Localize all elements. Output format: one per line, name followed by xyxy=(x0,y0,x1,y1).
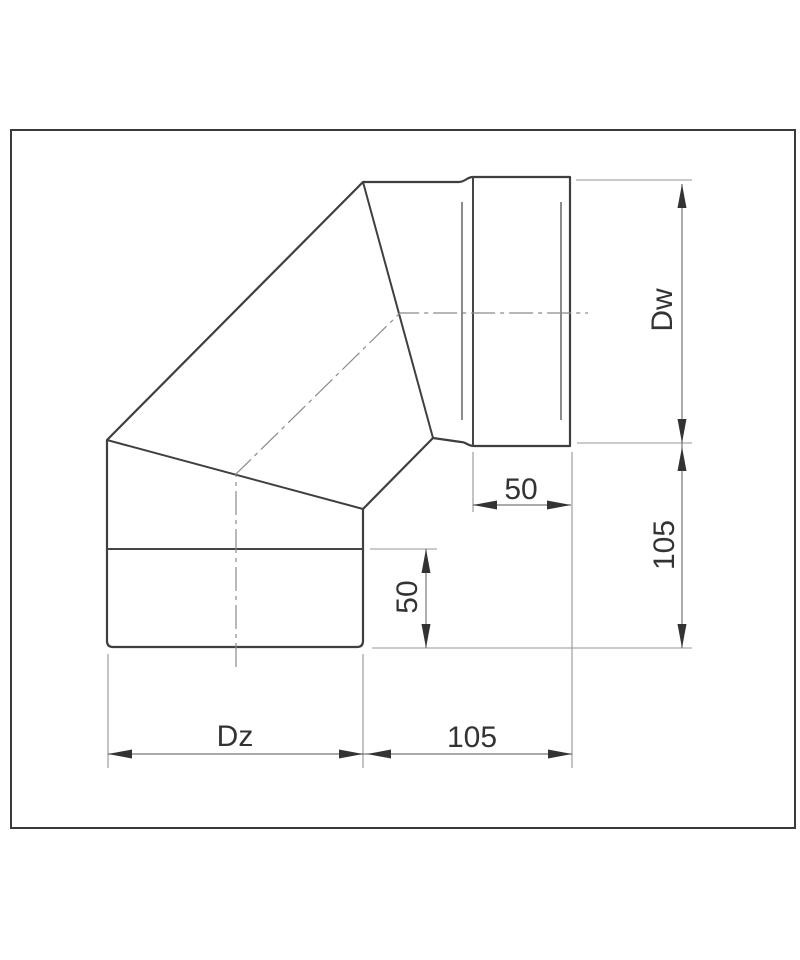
right-socket-dimension-label: 50 xyxy=(504,473,537,506)
arrow-down-icon xyxy=(678,624,687,648)
arrow-left-icon xyxy=(367,750,391,759)
arrow-right-icon xyxy=(547,501,571,510)
elbow-outline xyxy=(107,177,570,647)
arrow-up-icon xyxy=(678,184,687,208)
arrow-left-icon xyxy=(108,750,132,759)
dz-dimension-label: Dz xyxy=(217,720,254,753)
arrow-right-icon xyxy=(548,750,572,759)
right-length-dimension-label: 105 xyxy=(648,520,681,570)
arrow-down-icon xyxy=(422,624,431,648)
arrow-left-icon xyxy=(473,501,497,510)
dw-dimension-label: Dw xyxy=(646,288,679,332)
arrow-up-icon xyxy=(422,549,431,573)
bottom-length-dimension-label: 105 xyxy=(447,721,497,754)
arrow-right-icon xyxy=(339,750,363,759)
bottom-socket-dimension-label: 50 xyxy=(391,580,424,613)
arrow-down-icon xyxy=(678,419,687,443)
arrow-up-icon xyxy=(678,447,687,471)
elbow-technical-drawing: Dw 105 50 50 Dz 105 xyxy=(0,0,800,960)
drawing-page: Dw 105 50 50 Dz 105 xyxy=(0,0,800,960)
